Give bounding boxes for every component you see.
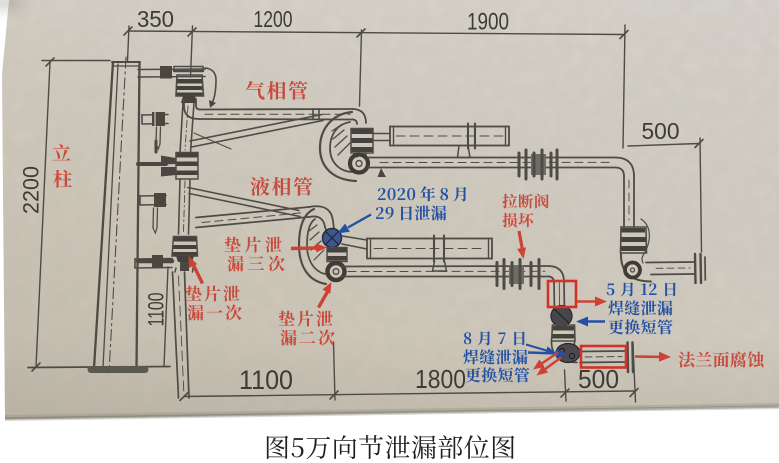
svg-text:1200: 1200 xyxy=(254,6,293,32)
svg-text:1900: 1900 xyxy=(467,9,509,36)
svg-text:1100: 1100 xyxy=(144,293,169,327)
svg-text:500: 500 xyxy=(578,364,619,394)
svg-text:1800: 1800 xyxy=(415,364,466,394)
svg-text:350: 350 xyxy=(137,6,174,32)
svg-text:2200: 2200 xyxy=(19,166,44,214)
svg-text:500: 500 xyxy=(642,118,680,144)
svg-text:1100: 1100 xyxy=(239,365,293,395)
